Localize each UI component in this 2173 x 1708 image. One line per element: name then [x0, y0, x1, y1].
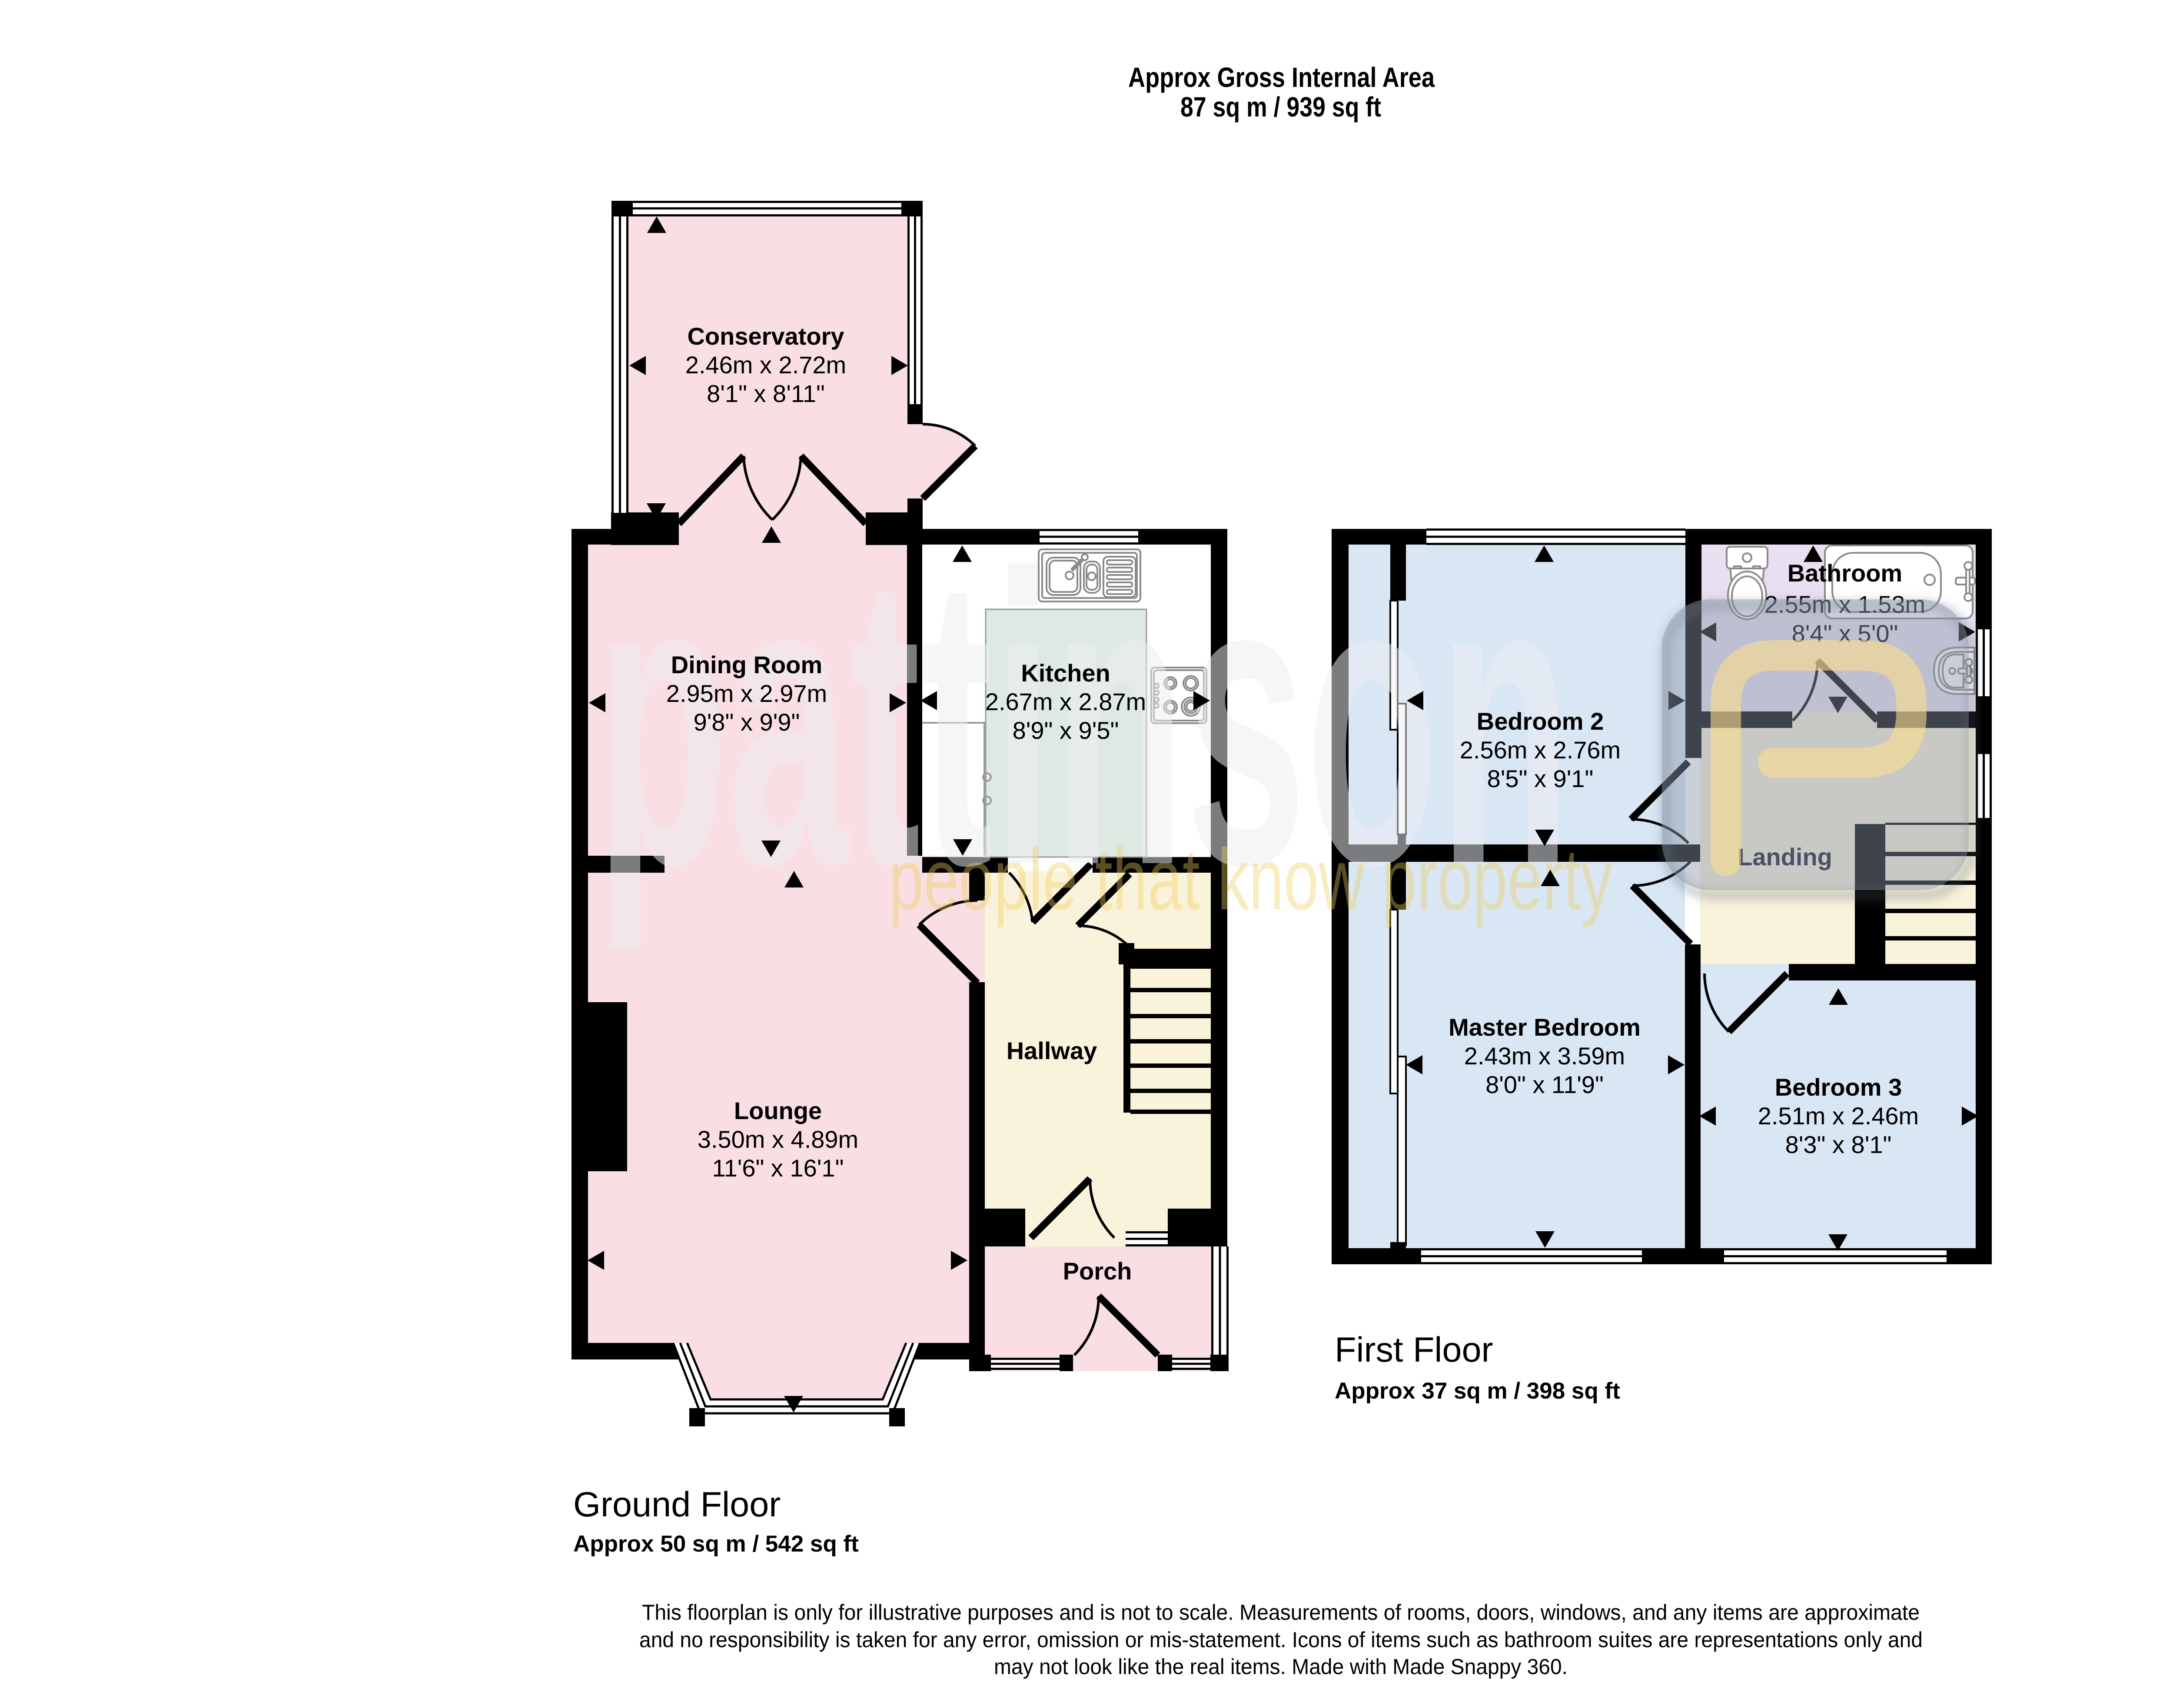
svg-text:First Floor: First Floor [1335, 1330, 1493, 1369]
svg-text:8'0" x 11'9": 8'0" x 11'9" [1485, 1071, 1604, 1098]
svg-text:11'6" x 16'1": 11'6" x 16'1" [712, 1154, 844, 1182]
svg-text:Ground Floor: Ground Floor [573, 1485, 781, 1524]
svg-text:3.50m x 4.89m: 3.50m x 4.89m [698, 1126, 858, 1153]
svg-text:Conservatory: Conservatory [687, 322, 844, 350]
svg-text:9'8" x 9'9": 9'8" x 9'9" [694, 708, 800, 736]
svg-text:Porch: Porch [1063, 1257, 1132, 1285]
svg-text:Bedroom 2: Bedroom 2 [1477, 708, 1604, 735]
svg-text:8'5" x 9'1": 8'5" x 9'1" [1487, 765, 1594, 792]
svg-text:Approx 37 sq m / 398 sq ft: Approx 37 sq m / 398 sq ft [1335, 1378, 1620, 1404]
svg-text:2.67m x 2.87m: 2.67m x 2.87m [985, 688, 1146, 715]
svg-text:Dining Room: Dining Room [671, 651, 822, 678]
svg-text:people that know property: people that know property [889, 831, 1612, 928]
svg-text:Bathroom: Bathroom [1788, 559, 1902, 587]
svg-text:Approx 50 sq m / 542 sq ft: Approx 50 sq m / 542 sq ft [573, 1531, 859, 1557]
svg-text:2.46m x 2.72m: 2.46m x 2.72m [685, 351, 846, 379]
svg-text:may not look like the real ite: may not look like the real items. Made w… [994, 1655, 1568, 1679]
svg-text:This floorplan is only for ill: This floorplan is only for illustrative … [642, 1600, 1920, 1625]
svg-text:and no responsibility is taken: and no responsibility is taken for any e… [639, 1628, 1923, 1652]
svg-text:2.56m x 2.76m: 2.56m x 2.76m [1460, 736, 1621, 764]
svg-text:8'1" x 8'11": 8'1" x 8'11" [707, 380, 825, 407]
svg-text:2.43m x 3.59m: 2.43m x 3.59m [1464, 1042, 1625, 1070]
svg-text:Bedroom 3: Bedroom 3 [1775, 1073, 1902, 1101]
svg-text:Master Bedroom: Master Bedroom [1449, 1014, 1641, 1041]
svg-text:2.51m x 2.46m: 2.51m x 2.46m [1758, 1102, 1919, 1130]
svg-text:Approx Gross Internal Area: Approx Gross Internal Area [1128, 62, 1435, 93]
svg-text:Hallway: Hallway [1007, 1037, 1097, 1064]
svg-text:87 sq m / 939 sq ft: 87 sq m / 939 sq ft [1180, 91, 1381, 123]
svg-text:Lounge: Lounge [734, 1097, 822, 1124]
svg-text:8'3" x 8'1": 8'3" x 8'1" [1785, 1131, 1892, 1158]
svg-text:8'9" x 9'5": 8'9" x 9'5" [1013, 717, 1119, 744]
svg-text:2.95m x 2.97m: 2.95m x 2.97m [666, 680, 827, 707]
svg-text:Kitchen: Kitchen [1021, 659, 1110, 687]
